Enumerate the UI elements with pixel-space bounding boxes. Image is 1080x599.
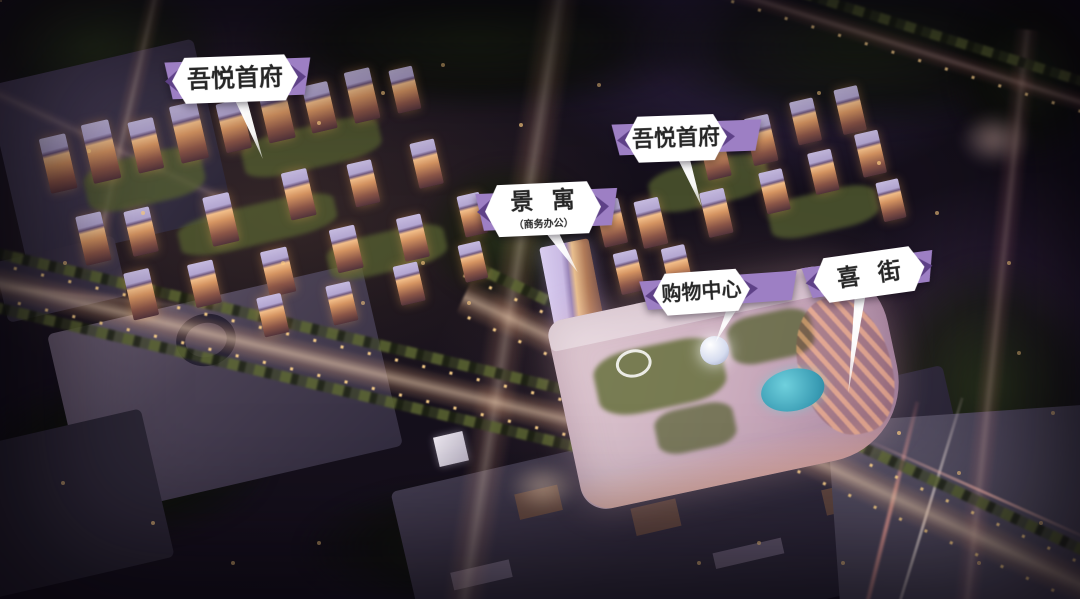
tower bbox=[758, 168, 791, 214]
tower bbox=[833, 85, 867, 135]
tower bbox=[789, 97, 822, 145]
tower bbox=[39, 133, 78, 194]
tower bbox=[187, 259, 222, 308]
tower bbox=[388, 66, 421, 114]
roof-patch bbox=[713, 538, 785, 569]
tower bbox=[344, 67, 381, 124]
callout-panel: 购物中心 bbox=[652, 268, 752, 317]
tower bbox=[346, 159, 380, 207]
tower bbox=[392, 261, 425, 306]
sphere-landmark bbox=[700, 336, 729, 365]
callout-label: 喜街 bbox=[835, 256, 920, 290]
tower bbox=[75, 211, 112, 266]
tower bbox=[123, 268, 159, 321]
callout-sublabel: （商务办公） bbox=[513, 213, 574, 231]
callout-label: 购物中心 bbox=[661, 279, 742, 305]
tower bbox=[807, 149, 840, 195]
intersection-glow bbox=[508, 462, 578, 512]
tower bbox=[854, 130, 887, 178]
callout-label: 景寓 bbox=[510, 186, 594, 213]
landscape-patch bbox=[175, 187, 340, 262]
intersection-glow bbox=[960, 112, 1030, 166]
callout-wuyue-shoufu-west: 吾悦首府 bbox=[164, 53, 312, 104]
city-light-sparkles bbox=[0, 0, 2, 2]
callout-panel: 景寓 （商务办公） bbox=[484, 181, 602, 238]
callout-jingyu: 景寓 （商务办公） bbox=[475, 180, 619, 238]
callout-wuyue-shoufu-east: 吾悦首府 bbox=[611, 112, 763, 163]
callout-label: 吾悦首府 bbox=[632, 126, 721, 151]
tower bbox=[409, 138, 444, 188]
tower bbox=[875, 178, 906, 222]
callout-panel: 吾悦首府 bbox=[624, 114, 728, 164]
roof-patch bbox=[630, 498, 681, 536]
callout-label: 吾悦首府 bbox=[187, 65, 284, 92]
aerial-night-rendering: 吾悦首府 吾悦首府 景寓 （商务办公） 购物中心 喜街 bbox=[0, 0, 1080, 599]
tower bbox=[260, 246, 297, 297]
tower bbox=[256, 293, 289, 338]
tower bbox=[325, 281, 358, 326]
callout-panel: 吾悦首府 bbox=[171, 54, 299, 104]
tower bbox=[457, 241, 488, 283]
tower bbox=[123, 206, 159, 257]
